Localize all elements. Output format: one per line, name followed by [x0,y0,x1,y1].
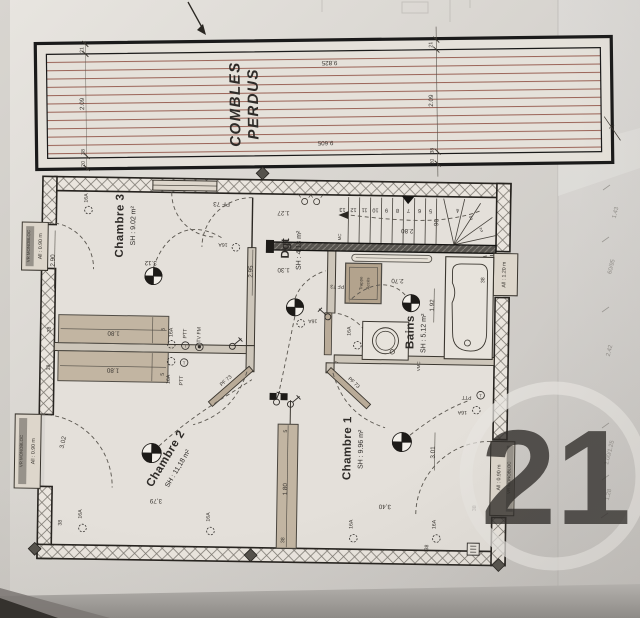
plan-drawing: COMBLES PERDUS 21 2.09 38 20 21 2.09 38 … [0,0,640,618]
floor-plan-photo: COMBLES PERDUS 21 2.09 38 20 21 2.09 38 … [0,0,640,618]
photo-shading [0,0,640,618]
